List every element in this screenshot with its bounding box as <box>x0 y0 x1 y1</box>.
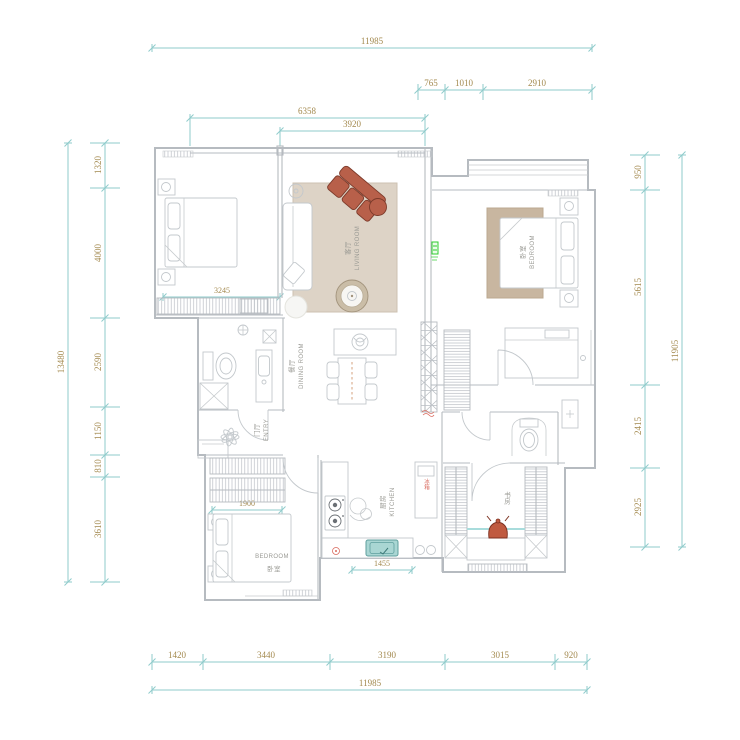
room-label-en: BEDROOM <box>255 554 289 560</box>
toilet-tank <box>203 352 213 380</box>
dim-left-3610: 3610 <box>93 520 103 539</box>
floor-plan-canvas: 11985 765 1010 2910 6358 3920 13480 1320… <box>0 0 740 740</box>
dresser <box>505 328 578 378</box>
dim-top-2910: 2910 <box>528 78 547 88</box>
chair <box>327 384 339 400</box>
kitchen: 冰箱 厨房 KITCHEN <box>322 462 437 558</box>
room-label-en: BEDROOM <box>530 235 536 269</box>
dim-right-2415: 2415 <box>633 417 643 436</box>
tea-table <box>467 538 525 560</box>
dim-bottom-outer: 11985 <box>359 678 382 688</box>
dim-right-2925: 2925 <box>633 498 643 517</box>
dim-right-950: 950 <box>633 165 643 179</box>
toilet-icon <box>216 353 236 379</box>
toilet-tank <box>520 419 538 427</box>
washer-hookup <box>427 546 436 555</box>
shaft <box>263 330 276 343</box>
room-label-zh: 卧室 <box>518 245 527 259</box>
dim-left-1150: 1150 <box>93 422 103 440</box>
fridge: 冰箱 <box>415 462 437 518</box>
pillow <box>561 222 574 250</box>
room-label-zh: 餐厅 <box>287 359 296 373</box>
pillow <box>216 519 228 545</box>
room-label-zh: 卧室 <box>267 564 281 573</box>
corridor-cabinets <box>421 322 470 417</box>
living-room: 客厅 LIVING ROOM <box>283 165 438 318</box>
pillow <box>168 235 180 261</box>
shelf-cabinet <box>444 330 470 410</box>
dim-bedroom-window: 3245 <box>214 286 230 295</box>
nightstand <box>560 198 578 215</box>
room-label-en: DINING ROOM <box>299 343 305 389</box>
chair <box>365 384 377 400</box>
dim-left-4000: 4000 <box>93 244 103 263</box>
plant-icon <box>221 428 240 447</box>
floor-plan: 11985 765 1010 2910 6358 3920 13480 1320… <box>0 0 740 740</box>
dim-left-outer: 13480 <box>56 350 66 373</box>
room-label-en: ENTRY <box>264 419 270 441</box>
wardrobe <box>210 458 285 474</box>
nightstand <box>158 269 175 285</box>
nightstand <box>560 290 578 307</box>
dim-top-outer: 11985 <box>361 36 384 46</box>
hall-cabinet <box>562 400 578 428</box>
entry-label: 门厅 ENTRY <box>252 419 270 441</box>
dim-left-2590: 2590 <box>93 353 103 372</box>
chair <box>365 362 377 378</box>
room-label-zh: 客厅 <box>343 241 352 255</box>
pouf <box>285 296 307 318</box>
washer-hookup <box>416 546 425 555</box>
dim-bottom-3440: 3440 <box>257 650 276 660</box>
washing-machine <box>200 383 228 409</box>
kitchen-label: 厨房 KITCHEN <box>378 487 396 516</box>
dim-bottom-920: 920 <box>564 650 578 660</box>
electrical-box-marker <box>431 242 438 260</box>
room-label-en: KITCHEN <box>390 487 396 516</box>
sideboard <box>334 329 396 355</box>
cabinet-x <box>445 535 467 558</box>
nightstand <box>158 179 175 195</box>
dim-top-3920: 3920 <box>343 119 362 129</box>
cabinet-x <box>525 535 547 558</box>
teapot-icon <box>487 516 509 538</box>
dim-kitchen-counter: 1455 <box>374 559 390 568</box>
dim-left-810: 810 <box>93 459 103 473</box>
door-arc <box>462 412 490 440</box>
dim-top-765: 765 <box>424 78 438 88</box>
dim-bottom-1420: 1420 <box>168 650 187 660</box>
dim-bottom-3190: 3190 <box>378 650 397 660</box>
dining-label: 餐厅 DINING ROOM <box>287 343 305 389</box>
shoe-cabinet <box>421 322 437 412</box>
study: 书房 <box>445 463 547 560</box>
sketch-swirl <box>350 498 372 521</box>
sink-icon <box>366 540 398 556</box>
ottoman <box>370 199 387 216</box>
bedroom-bottom: BEDROOM 卧室 <box>208 458 318 582</box>
dining-room: 餐厅 DINING ROOM <box>287 329 396 404</box>
coffee-table <box>336 280 368 312</box>
dim-right-5615: 5615 <box>633 278 643 297</box>
fridge-label: 冰箱 <box>423 477 430 491</box>
bedroom-right: 卧室 BEDROOM <box>487 198 578 385</box>
bathroom-2 <box>462 400 578 456</box>
dim-top-1010: 1010 <box>455 78 474 88</box>
pillow <box>561 256 574 284</box>
room-label-en: LIVING ROOM <box>355 226 361 270</box>
dim-top-6358: 6358 <box>298 106 317 116</box>
study-label: 书房 <box>503 490 511 506</box>
pillow <box>168 203 180 229</box>
dim-left-1320: 1320 <box>93 156 103 175</box>
room-label-zh: 门厅 <box>252 423 261 437</box>
chair <box>327 362 339 378</box>
bedroom-top-left <box>158 179 237 285</box>
vanity <box>256 350 272 402</box>
room-label-zh: 厨房 <box>378 495 387 509</box>
stove-icon <box>325 496 345 530</box>
dim-right-outer: 11905 <box>670 339 680 362</box>
door-arc <box>283 458 318 493</box>
dim-bottom-3015: 3015 <box>491 650 510 660</box>
